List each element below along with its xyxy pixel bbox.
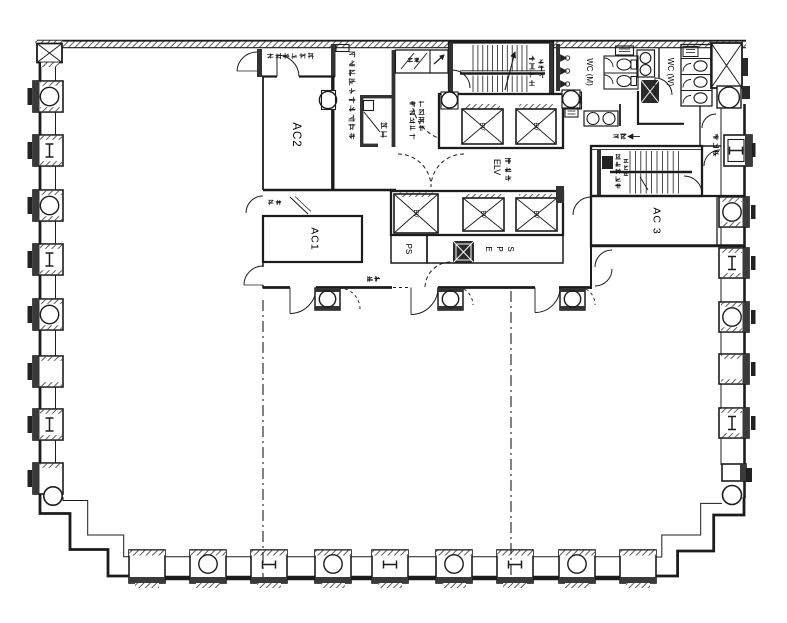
svg-text:EV: EV [532,210,538,218]
svg-text:EV: EV [478,122,484,130]
svg-text:EV: EV [479,210,485,218]
svg-text:ELV: ELV [492,159,502,175]
svg-text:E: E [484,246,493,251]
svg-text:WC (W): WC (W) [666,58,675,87]
svg-text:P: P [495,246,504,251]
svg-text:AC1: AC1 [308,227,320,250]
svg-text:EV: EV [532,122,538,130]
svg-text:S: S [506,246,515,251]
svg-text:PS: PS [404,244,413,255]
svg-text:EV: EV [412,209,418,217]
svg-text:AC2: AC2 [290,122,302,147]
svg-text:AC 3: AC 3 [650,207,662,234]
svg-text:WC (M): WC (M) [585,58,594,86]
